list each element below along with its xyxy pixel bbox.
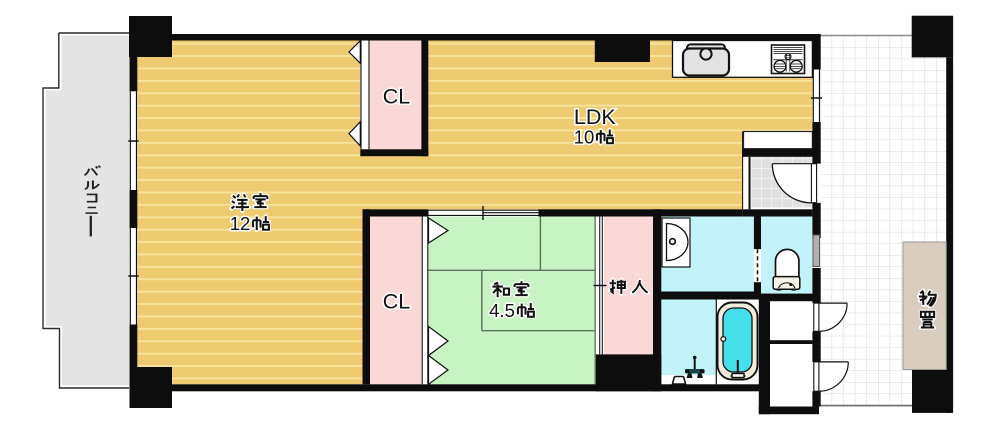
svg-text:10: 10 bbox=[574, 127, 595, 148]
svg-text:CL: CL bbox=[383, 289, 411, 313]
svg-text:CL: CL bbox=[383, 84, 411, 108]
svg-text:4.5: 4.5 bbox=[489, 300, 515, 321]
svg-text:12: 12 bbox=[230, 213, 251, 234]
